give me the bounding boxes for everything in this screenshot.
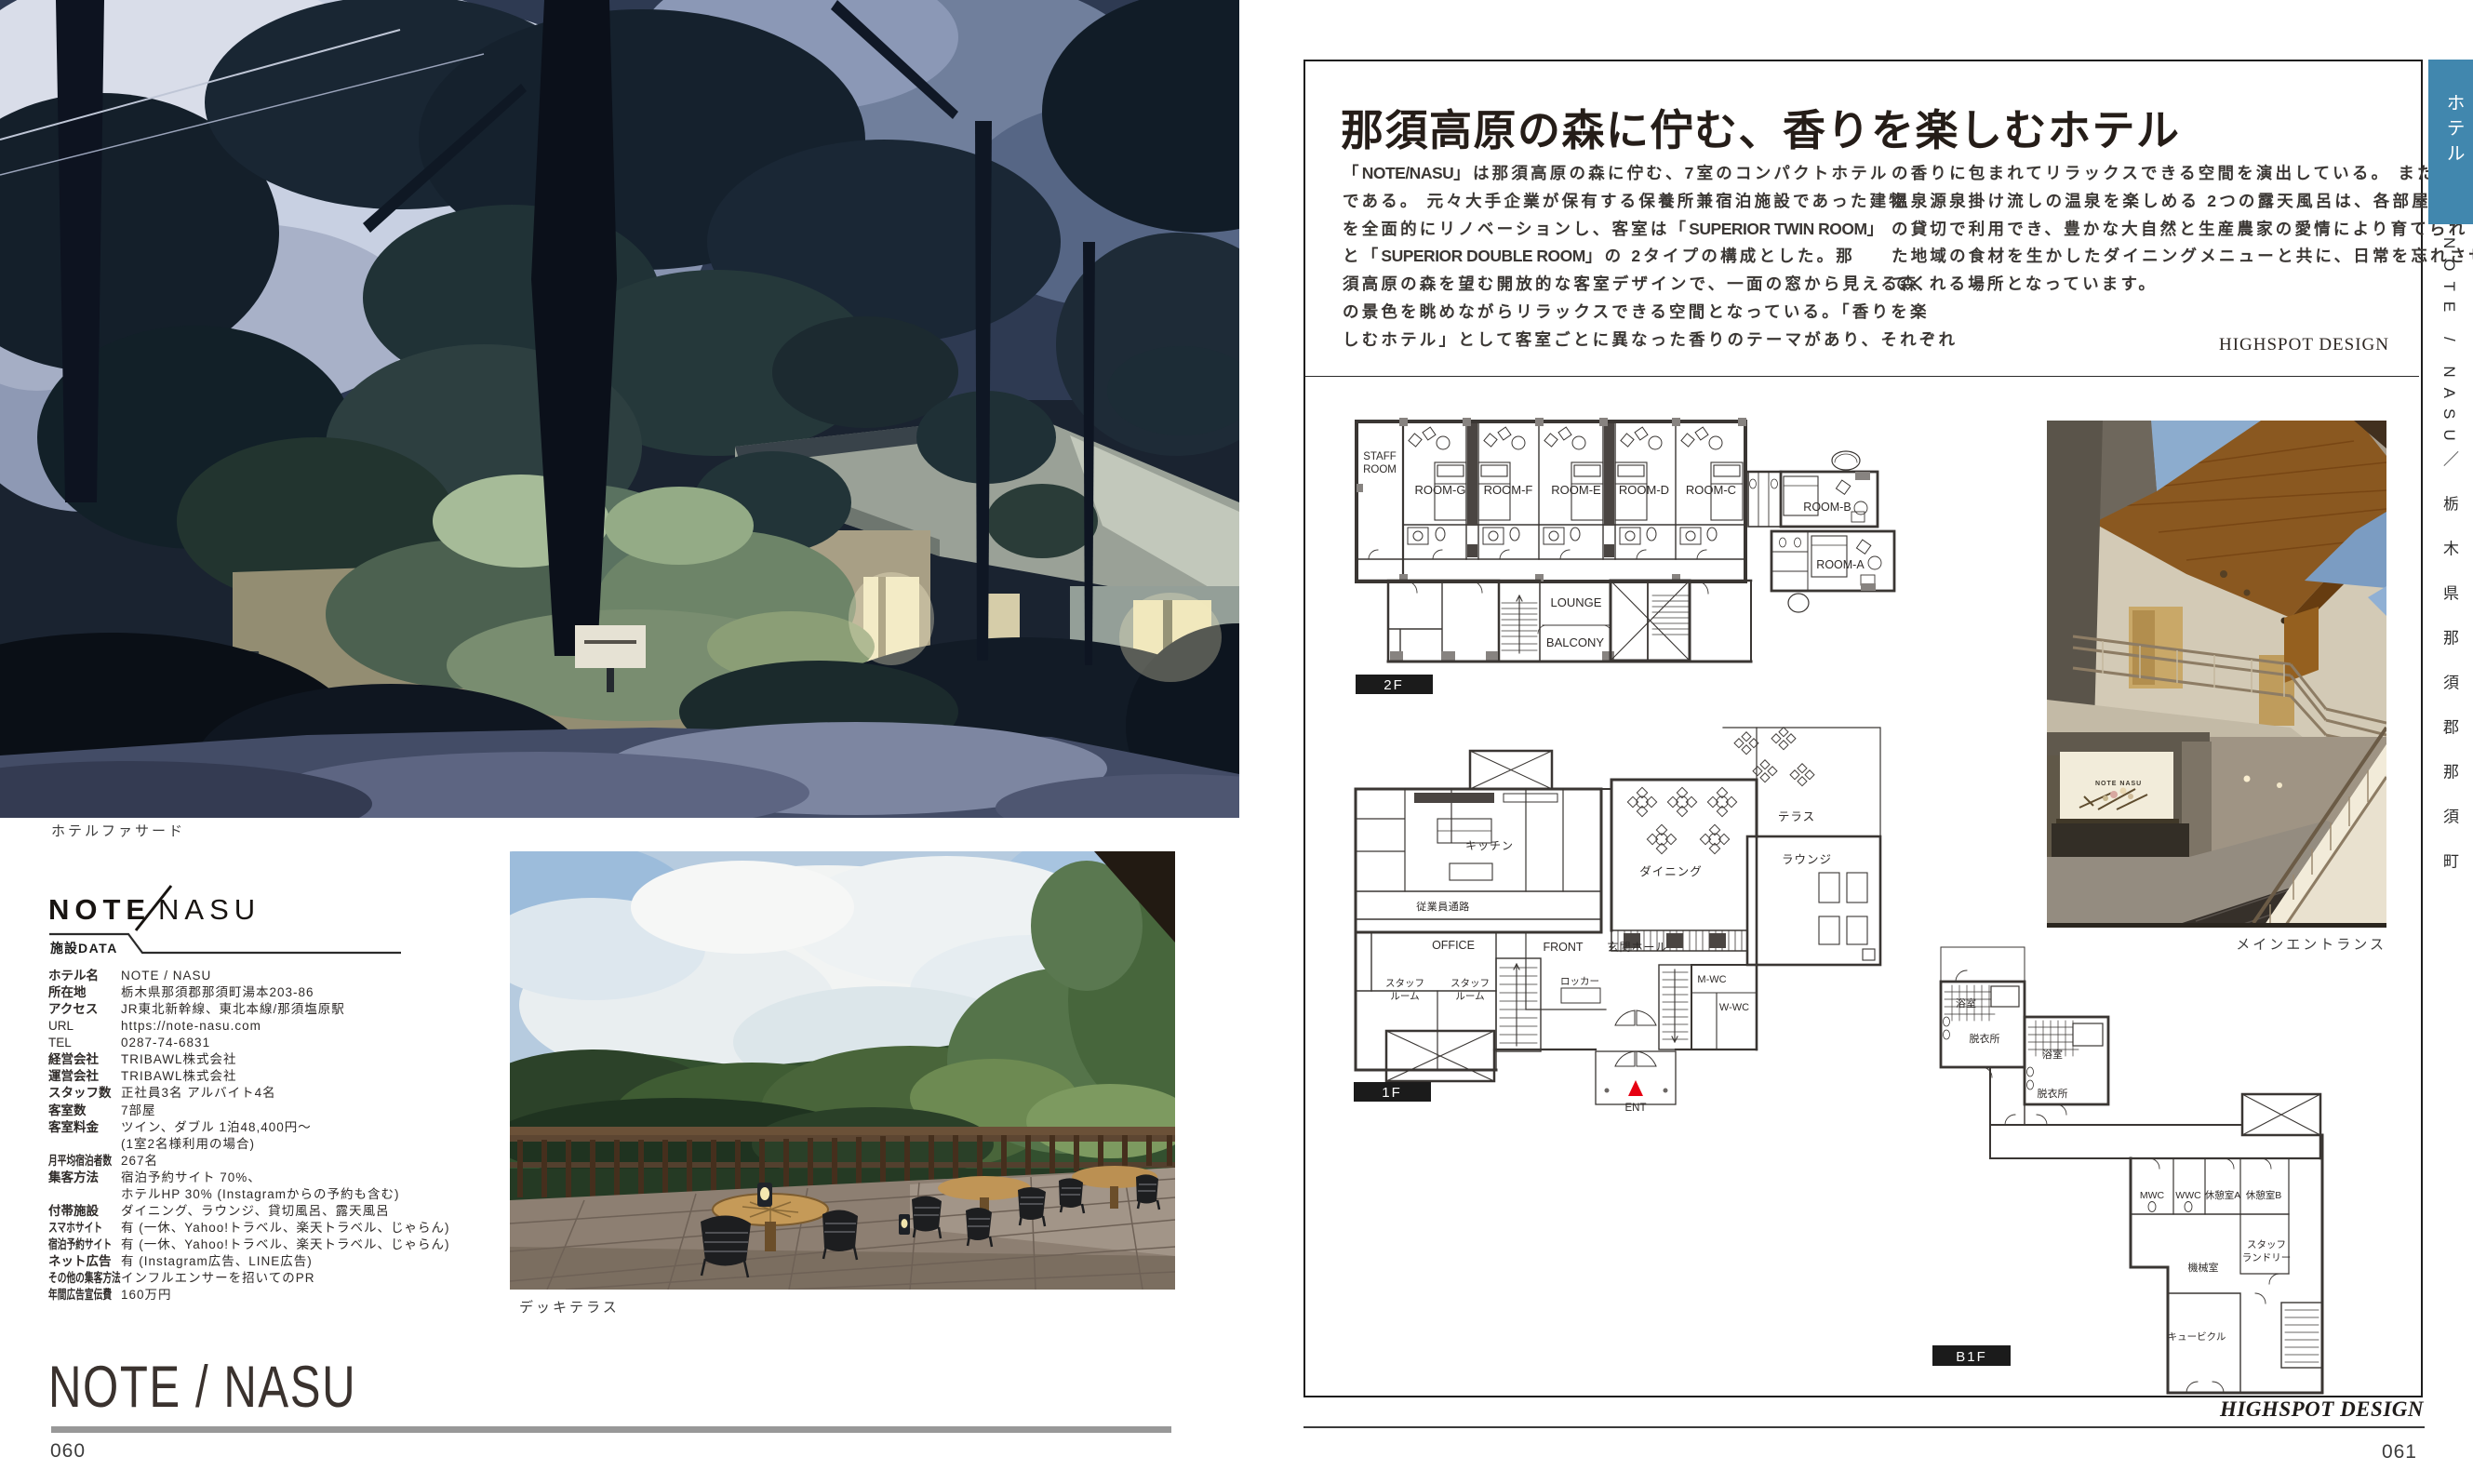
svg-text:ENT: ENT (1625, 1103, 1647, 1114)
svg-text:ロッカー: ロッカー (1560, 976, 1599, 987)
svg-text:ROOM-G: ROOM-G (1415, 483, 1466, 497)
svg-text:従業員通路: 従業員通路 (1416, 901, 1470, 913)
svg-text:OFFICE: OFFICE (1432, 939, 1475, 952)
svg-text:FRONT: FRONT (1543, 941, 1583, 954)
svg-text:キッチン: キッチン (1465, 839, 1514, 852)
svg-text:M-WC: M-WC (1697, 974, 1726, 985)
svg-text:STAFF: STAFF (1363, 451, 1397, 462)
svg-text:キュービクル: キュービクル (2168, 1331, 2226, 1343)
svg-text:スタッフ: スタッフ (1450, 978, 1490, 989)
svg-text:浴室: 浴室 (2042, 1048, 2063, 1061)
svg-text:WWC: WWC (2175, 1190, 2201, 1201)
svg-text:ラウンジ: ラウンジ (1782, 853, 1832, 866)
svg-text:ROOM-A: ROOM-A (1816, 558, 1865, 571)
svg-text:ROOM-E: ROOM-E (1551, 483, 1601, 497)
svg-text:MWC: MWC (2140, 1190, 2165, 1201)
svg-text:W-WC: W-WC (1719, 1002, 1749, 1013)
svg-text:玄関ホール: 玄関ホール (1607, 940, 1667, 954)
svg-text:テラス: テラス (1778, 810, 1815, 823)
svg-text:浴室: 浴室 (1956, 996, 1976, 1009)
svg-text:機械室: 機械室 (2188, 1261, 2219, 1274)
svg-text:ルーム: ルーム (1455, 991, 1484, 1002)
svg-text:ROOM-B: ROOM-B (1803, 501, 1851, 514)
svg-text:脱衣所: 脱衣所 (2038, 1087, 2068, 1100)
svg-text:脱衣所: 脱衣所 (1970, 1032, 2000, 1045)
svg-text:スタッフ: スタッフ (1385, 978, 1424, 989)
svg-text:ROOM: ROOM (1363, 464, 1397, 475)
svg-text:BALCONY: BALCONY (1546, 635, 1604, 649)
svg-text:ROOM-D: ROOM-D (1619, 483, 1669, 497)
svg-text:LOUNGE: LOUNGE (1551, 595, 1602, 609)
svg-text:スタッフ: スタッフ (2247, 1239, 2286, 1250)
svg-text:休憩室A: 休憩室A (2205, 1189, 2241, 1201)
svg-text:B1F: B1F (1956, 1349, 1987, 1365)
svg-text:ルーム: ルーム (1390, 991, 1419, 1002)
svg-text:休憩室B: 休憩室B (2246, 1189, 2282, 1201)
svg-text:1F: 1F (1382, 1085, 1402, 1101)
svg-text:ROOM-F: ROOM-F (1484, 483, 1533, 497)
svg-text:2F: 2F (1384, 677, 1404, 693)
svg-text:ランドリー: ランドリー (2242, 1252, 2292, 1263)
svg-text:ダイニング: ダイニング (1639, 864, 1703, 878)
